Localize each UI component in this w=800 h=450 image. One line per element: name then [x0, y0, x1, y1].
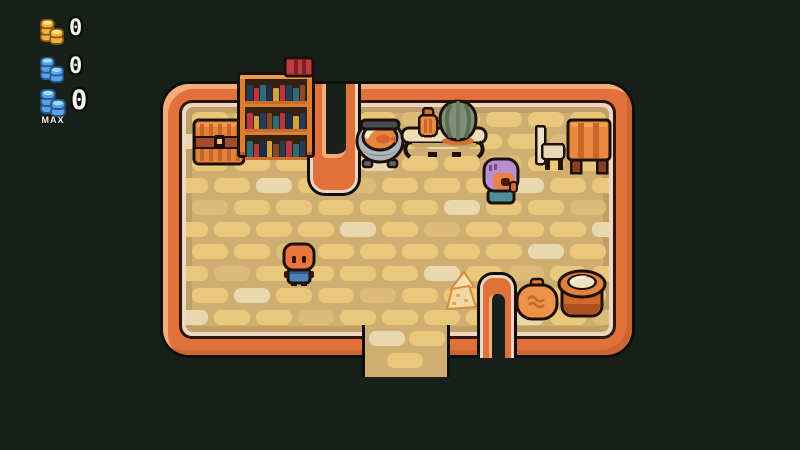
floor-tile — [528, 244, 564, 259]
floor-tile — [276, 288, 312, 303]
floor-tile — [409, 331, 445, 346]
floor-tile — [340, 222, 376, 237]
book — [293, 116, 299, 129]
north-passage-opening — [322, 84, 346, 158]
gold-coin-counter: 0 — [40, 16, 82, 45]
chair-icon — [534, 124, 568, 174]
book — [260, 113, 266, 129]
book — [254, 116, 260, 129]
book — [260, 85, 266, 101]
gold-coin-value: 0 — [69, 16, 82, 42]
floor-tile — [318, 244, 354, 259]
blue-coin-max-value: 0 — [71, 86, 87, 116]
floor-tile — [570, 244, 606, 259]
book — [267, 141, 273, 157]
floor-tile — [214, 178, 250, 193]
floor-tile — [214, 266, 250, 281]
bookshelf-row — [245, 79, 307, 104]
floor-tile — [424, 310, 460, 325]
floor-tile — [234, 200, 270, 215]
npc-purple-hair[interactable] — [480, 156, 522, 206]
floor-tile — [570, 200, 606, 215]
rock-succulent[interactable] — [436, 98, 480, 146]
floor-tile — [360, 200, 396, 215]
floor-tile — [256, 178, 292, 193]
floor-tile — [276, 200, 312, 215]
book — [273, 144, 279, 157]
book — [254, 144, 260, 157]
side-table-icon — [566, 118, 612, 176]
floor-tile — [192, 288, 228, 303]
blue-coin-stack-icon — [40, 86, 66, 117]
blue-coin-stack-icon — [40, 54, 64, 83]
book — [254, 88, 260, 101]
blue-coin-value: 0 — [69, 54, 82, 80]
wall-notch-south — [477, 272, 517, 358]
bookshelf[interactable] — [237, 72, 315, 158]
floor-tile — [360, 244, 396, 259]
floor-tile — [402, 244, 438, 259]
book — [247, 85, 253, 101]
book — [300, 113, 306, 129]
book — [267, 85, 273, 101]
floor-tile — [382, 178, 418, 193]
floor-tile — [592, 222, 609, 237]
book — [293, 88, 299, 101]
floor-tile — [382, 310, 418, 325]
book — [300, 85, 306, 101]
book — [293, 144, 299, 157]
book — [280, 141, 286, 157]
floor-tile — [186, 222, 208, 237]
floor-tile — [382, 266, 418, 281]
floor-tile — [298, 222, 334, 237]
blue-coin-counter-max: MAX 0 — [40, 86, 87, 125]
fish-cauldron-icon — [353, 110, 407, 170]
floor-tile — [486, 244, 522, 259]
book — [286, 113, 292, 129]
floor-tile — [550, 178, 586, 193]
grain-sack-icon — [514, 276, 560, 322]
clay-pot-icon — [556, 258, 608, 322]
floor-tile — [528, 200, 564, 215]
floor-tile — [369, 331, 405, 346]
clay-pot[interactable] — [556, 258, 608, 322]
floor-tile — [234, 288, 270, 303]
floor-tile — [234, 244, 270, 259]
book — [260, 141, 266, 157]
floor-tile — [340, 266, 376, 281]
grain-sack[interactable] — [514, 276, 560, 322]
book — [280, 113, 286, 129]
floor-tile — [550, 222, 586, 237]
floor-tile — [186, 178, 208, 193]
floor-tile — [318, 288, 354, 303]
exit-south — [362, 325, 450, 377]
book — [280, 85, 286, 101]
book — [247, 141, 253, 157]
player-sprite — [280, 240, 318, 288]
fish-cauldron[interactable] — [353, 110, 407, 170]
game-screen: 0 0 — [0, 0, 800, 450]
floor-tile — [382, 222, 418, 237]
floor-tile — [192, 200, 228, 215]
floor-tile — [387, 353, 423, 368]
floor-tile — [298, 310, 334, 325]
floor-tile — [192, 244, 228, 259]
floor-tile — [256, 310, 292, 325]
floor-tile — [340, 310, 376, 325]
book — [286, 141, 292, 157]
floor-tile — [360, 288, 396, 303]
rock-succulent-icon — [436, 98, 480, 146]
red-book-stack — [283, 56, 315, 78]
book — [300, 141, 306, 157]
bookshelf-row — [245, 135, 307, 160]
floor-tile — [214, 222, 250, 237]
floor-tile — [444, 244, 480, 259]
chair[interactable] — [534, 124, 568, 174]
book — [286, 85, 292, 101]
floor-tile — [402, 288, 438, 303]
floor-tile — [214, 310, 250, 325]
floor-tile — [466, 222, 502, 237]
floor-tile — [424, 222, 460, 237]
book — [273, 116, 279, 129]
floor-tile — [508, 222, 544, 237]
blue-coin-counter: 0 — [40, 54, 82, 83]
side-table[interactable] — [566, 118, 612, 176]
floor-tile — [424, 178, 460, 193]
floor-tile — [444, 200, 480, 215]
floor-tile — [318, 200, 354, 215]
hay-pile-icon — [442, 270, 480, 312]
floor-tile — [592, 178, 609, 193]
max-badge: MAX — [42, 115, 65, 125]
npc-sprite — [480, 156, 522, 206]
south-notch-opening — [489, 294, 505, 358]
book — [267, 113, 273, 129]
hay-pile[interactable] — [442, 270, 480, 312]
floor-tile — [256, 222, 292, 237]
bookshelf-row — [245, 107, 307, 132]
book — [273, 88, 279, 101]
floor-tile — [486, 112, 522, 127]
floor-tile — [186, 310, 208, 325]
red-book-icon — [283, 56, 315, 78]
gold-coin-stack-icon — [40, 16, 64, 45]
floor-tile — [402, 200, 438, 215]
player-character[interactable] — [280, 240, 318, 288]
floor-tile — [186, 266, 208, 281]
book — [247, 113, 253, 129]
